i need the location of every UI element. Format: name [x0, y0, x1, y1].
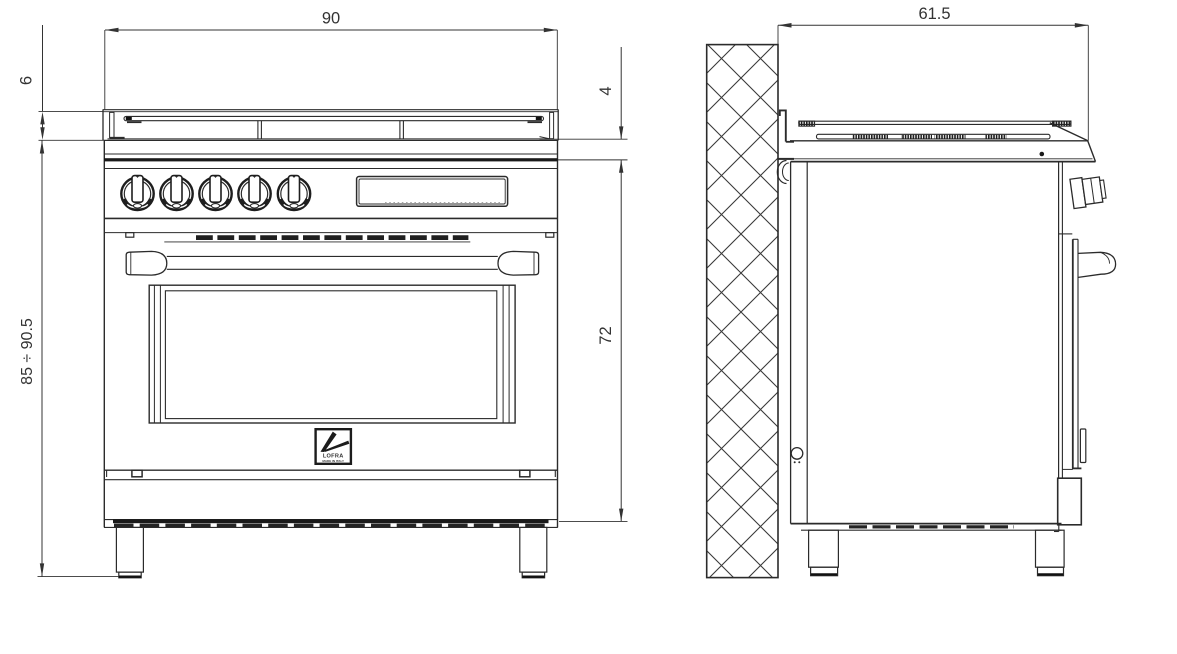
svg-text:61.5: 61.5: [918, 5, 950, 23]
svg-text:4: 4: [597, 86, 615, 95]
svg-text:MADE IN ITALY: MADE IN ITALY: [322, 459, 344, 463]
svg-text:6: 6: [18, 76, 36, 85]
svg-text:72: 72: [597, 326, 615, 344]
svg-text:85 ÷ 90.5: 85 ÷ 90.5: [19, 318, 36, 385]
svg-text:90: 90: [322, 10, 340, 28]
